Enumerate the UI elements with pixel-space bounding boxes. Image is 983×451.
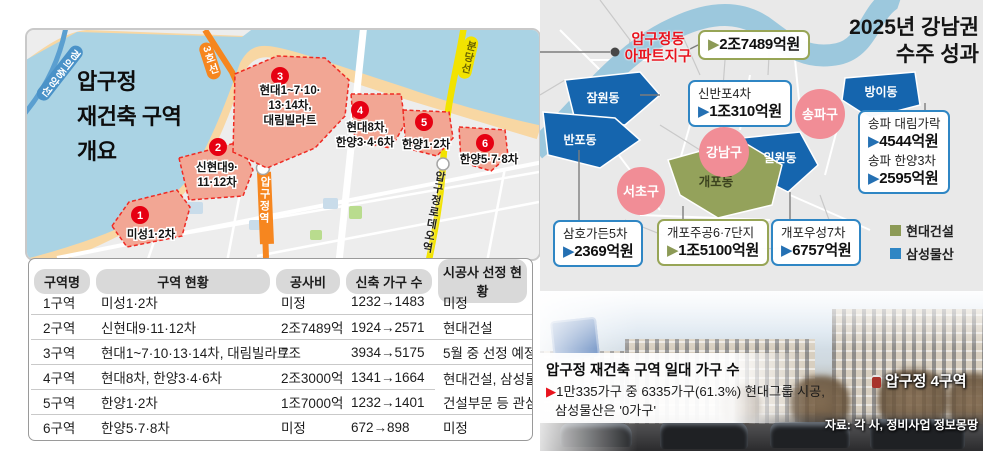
table-cell: 미성1·2차 [93,289,273,314]
car [660,421,748,449]
left-map-title-line: 재건축 구역 [77,99,181,134]
callout-name: 송파 한양3차 [868,152,940,169]
svg-text:5: 5 [421,117,427,129]
table-cell: 현대8차, 한양3·4·6차 [93,364,273,389]
district-summary-table: 구역명 구역 현황 공사비 신축 가구 수 시공사 선정 현황 1구역 미성1·… [28,258,533,441]
region-label-banpo: 반포동 [563,132,596,147]
svg-text:1: 1 [137,210,143,222]
table-cell: 4구역 [31,364,93,389]
region-label-jamwon: 잠원동 [586,90,619,105]
table-cell: 3934→5175 [343,339,435,364]
district-3-label: 13·14차, [268,98,311,112]
callout-value: 1조5100억원 [678,242,759,259]
apgujeong-street-photo: 압구정 재건축 구역 일대 가구 수 ▶1만335가구 중 6335가구(61.… [540,291,983,451]
traffic-signal-icon [872,375,881,388]
svg-text:2: 2 [215,142,221,154]
table-cell: 미정 [273,414,343,439]
triangle-arrow-icon: ▶ [546,384,556,399]
table-cell: 7조 [273,339,343,364]
table-cell: 3구역 [31,339,93,364]
table-cell: 6구역 [31,414,93,439]
photo-area-label: 압구정 4구역 [872,370,967,391]
table-cell: 1232→1401 [343,389,435,414]
triangle-arrow-icon: ▶ [698,103,709,120]
table-cell: 미정 [435,414,533,439]
legend-label: 삼성물산 [906,244,954,263]
area-label-text: 압구정 4구역 [885,373,967,390]
table-cell: 2구역 [31,314,93,339]
infographic-root: { "left_map": { "title_lines": ["압구정", "… [0,0,983,451]
table-cell: 1341→1664 [343,364,435,389]
callout-gaepo-wooseong: 개포우성7차 ▶6757억원 [771,219,861,266]
school-patch [323,198,338,209]
region-label-irwon: 일원동 [763,151,796,165]
table-cell: 5월 중 선정 예정 [435,339,533,364]
callout-value: 2조7489억원 [719,36,800,53]
triangle-arrow-icon: ▶ [868,133,879,150]
table-cell: 2조3000억 [273,364,343,389]
district-2-label: 11·12차 [197,175,237,189]
samsung-swatch-icon [890,248,901,259]
table-cell: 신현대9·11·12차 [93,314,273,339]
source-credit: 자료: 각 사, 정비사업 정보몽땅 [790,416,978,433]
svg-text:3: 3 [277,71,283,83]
hyundai-swatch-icon [890,225,901,236]
callout-name: 삼호가든5차 [563,225,633,242]
callout-apgujeong: ▶2조7489억원 [698,30,810,60]
car [560,423,632,447]
callout-value: 4544억원 [879,133,938,150]
callout-songpa: 송파 대림가락 ▶4544억원 송파 한양3차 ▶2595억원 [858,110,950,194]
apgujeong-label-line: 아파트지구 [618,49,698,66]
callout-name: 개포우성7차 [781,224,851,241]
callout-value: 6757억원 [792,242,851,259]
district-1-label: 미성1·2차 [127,227,176,241]
table-cell-merged: 현대건설, 삼성물산 건설부문 등 관심 [435,364,533,414]
legend-item-samsung: 삼성물산 [890,244,954,263]
district-2-label: 신현대9· [196,160,238,174]
district-5-label: 한양1·2차 [402,137,451,151]
district-3-label: 대림빌라트 [264,113,317,127]
district-4-label: 한양3·4·6차 [336,135,395,149]
district-4-label: 현대8차, [346,120,387,134]
photo-caption-line2: 삼성물산은 '0가구' [555,400,656,419]
caption-text: 1만335가구 중 6335가구(61.3%) 현대그룹 시공, [556,384,825,399]
table-cell: 1924→2571 [343,314,435,339]
table-cell: 1232→1483 [343,289,435,314]
table-cell: 현대건설 [435,314,533,339]
photo-caption-title: 압구정 재건축 구역 일대 가구 수 [546,359,740,380]
callout-name: 신반포4차 [698,85,782,102]
table-cell: 현대1~7·10·13·14차, 대림빌라트 [93,339,273,364]
left-map-title: 압구정 재건축 구역 개요 [77,64,181,169]
table-cell: 1구역 [31,289,93,314]
rodeo-station-dot [437,158,449,170]
table-cell-line: 현대건설, 삼성물산 [443,366,533,390]
region-label-bangi: 방이동 [864,84,897,99]
apgujeong-district-label: 압구정동 아파트지구 [618,32,698,65]
table-cell-line: 건설부문 등 관심 [443,390,533,414]
left-map-title-line: 압구정 [77,64,181,99]
district-5: 5 한양1·2차 [402,110,453,156]
apgujeong-label-line: 압구정동 [618,32,698,49]
callout-value: 1조310억원 [709,103,782,120]
gu-label-gangnam: 강남구 [706,145,742,160]
park-patch [310,230,322,240]
callout-value: 2369억원 [574,243,633,260]
right-map-title-line: 2025년 강남권 [849,14,979,41]
park-patch [349,206,362,219]
table-cell: 1조7000억 [273,389,343,414]
callout-gaepo-jugong: 개포주공6·7단지 ▶1조5100억원 [657,219,769,266]
gu-label-seocho: 서초구 [623,184,659,199]
triangle-arrow-icon: ▶ [708,36,719,53]
triangle-arrow-icon: ▶ [563,243,574,260]
apgujeong-station-label: 압구정역 [255,176,273,225]
left-map-title-line: 개요 [77,134,181,169]
triangle-arrow-icon: ▶ [868,170,879,187]
callout-sinbanpo: 신반포4차 ▶1조310억원 [688,80,792,127]
table-cell: 한양1·2차 [93,389,273,414]
table-header-row: 구역명 구역 현황 공사비 신축 가구 수 시공사 선정 현황 [29,259,532,289]
photo-caption-line1: ▶1만335가구 중 6335가구(61.3%) 현대그룹 시공, [546,381,825,400]
callout-name: 송파 대림가락 [868,115,940,132]
table-cell: 672→898 [343,414,435,439]
callout-samho: 삼호가든5차 ▶2369억원 [553,220,643,267]
gu-label-songpa: 송파구 [802,107,838,122]
district-3-label: 현대1~7·10· [259,83,320,97]
triangle-arrow-icon: ▶ [667,242,678,259]
table-cell: 2조7489억 [273,314,343,339]
table-cell: 한양5·7·8차 [93,414,273,439]
right-map-title: 2025년 강남권 수주 성과 [849,14,979,68]
table-cell: 5구역 [31,389,93,414]
apgujeong-overview-map: 1 미성1·2차 2 신현대9· 11·12차 3 현대1~7·10· 13·1… [25,28,541,261]
table-cell: 미정 [273,289,343,314]
table-body: 1구역 미성1·2차 미정 1232→1483 미정 2구역 신현대9·11·1… [29,289,532,439]
gangnam-awards-map: 잠원동 반포동 방이동 일원동 개포동 서초구 강남구 송파구 2025년 강남… [540,0,983,312]
legend-label: 현대건설 [906,221,954,240]
legend-item-hyundai: 현대건설 [890,221,954,240]
region-label-gaepo: 개포동 [699,175,734,189]
svg-text:4: 4 [357,105,364,117]
svg-text:6: 6 [482,138,488,150]
right-map-title-line: 수주 성과 [849,41,979,68]
table-cell: 미정 [435,289,533,314]
builder-legend: 현대건설 삼성물산 [890,221,954,267]
callout-name: 개포주공6·7단지 [667,224,759,241]
triangle-arrow-icon: ▶ [781,242,792,259]
district-6-label: 한양5·7·8차 [460,152,519,166]
callout-value: 2595억원 [879,170,938,187]
